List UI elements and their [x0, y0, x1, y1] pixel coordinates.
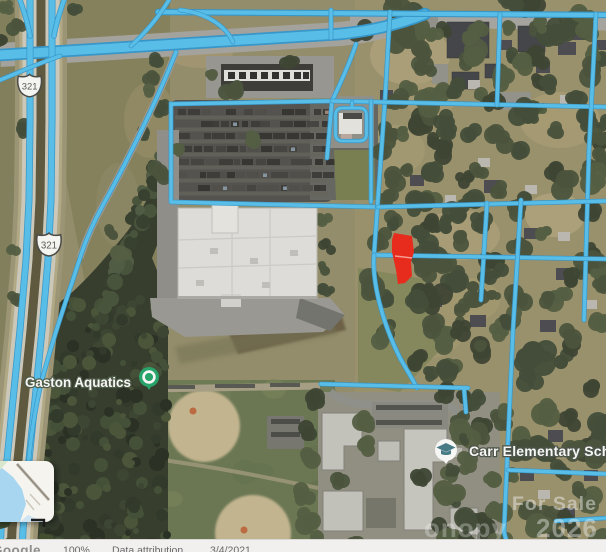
svg-text:Data attribution: Data attribution: [112, 545, 183, 553]
svg-text:100%: 100%: [63, 545, 90, 553]
svg-text:3/4/2021: 3/4/2021: [210, 545, 251, 553]
svg-text:Google: Google: [0, 543, 41, 552]
